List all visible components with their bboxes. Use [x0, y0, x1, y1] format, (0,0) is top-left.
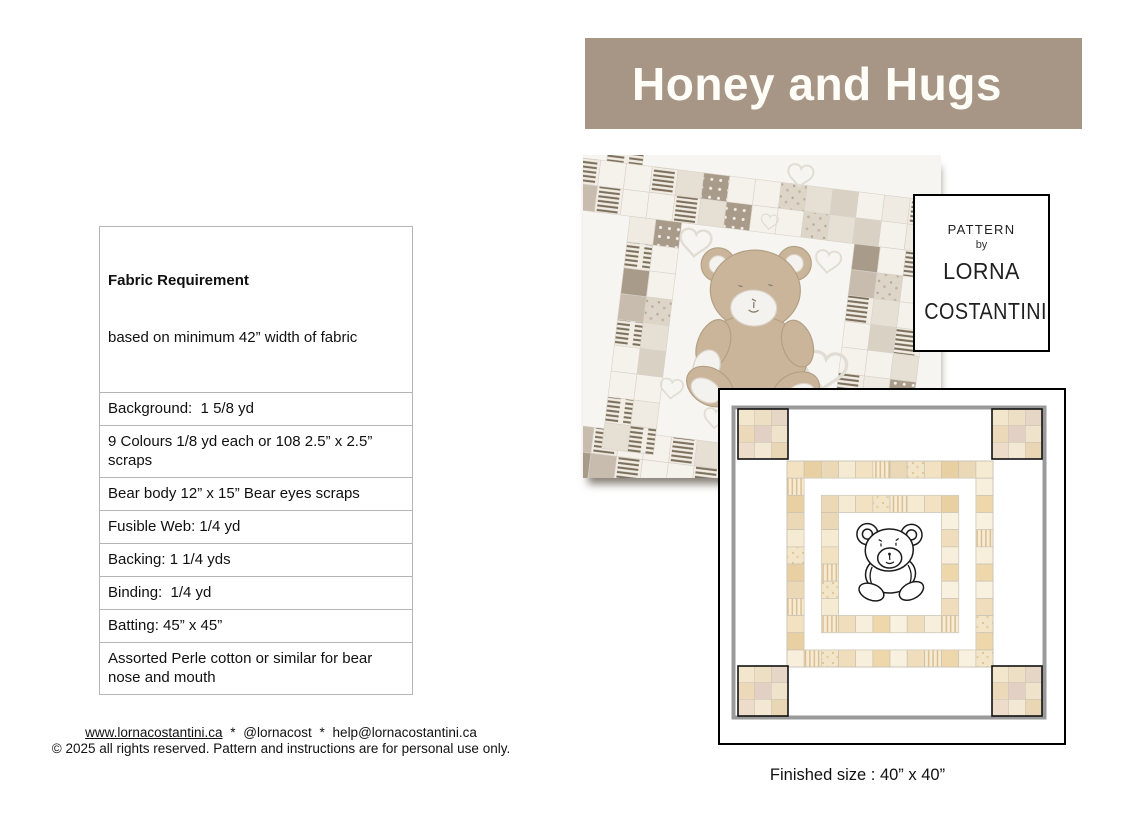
pattern-page: Fabric Requirement based on minimum 42” … — [0, 0, 1138, 823]
designer-first-name: LORNA — [919, 258, 1044, 285]
footer-copyright: © 2025 all rights reserved. Pattern and … — [0, 741, 562, 757]
title-banner: Honey and Hugs — [585, 38, 1082, 129]
social-handle: @lornacost — [243, 725, 311, 740]
footer-separator: * — [230, 725, 235, 740]
page-title: Honey and Hugs — [585, 38, 1082, 131]
website-link[interactable]: www.lornacostantini.ca — [85, 725, 222, 740]
pattern-label: PATTERN — [915, 222, 1048, 237]
table-row: Backing: 1 1/4 yds — [100, 544, 412, 577]
designer-last-name: COSTANTINI — [924, 298, 1038, 325]
table-row: Fabric Requirement based on minimum 42” … — [100, 227, 412, 393]
table-row: Binding: 1/4 yd — [100, 577, 412, 610]
quilt-diagram — [720, 390, 1064, 743]
table-row: Fusible Web: 1/4 yd — [100, 511, 412, 544]
quilt-diagram-box — [718, 388, 1066, 745]
table-row: Assorted Perle cotton or similar for bea… — [100, 643, 412, 695]
table-row: Bear body 12” x 15” Bear eyes scraps — [100, 478, 412, 511]
footer-separator: * — [320, 725, 325, 740]
table-row: Batting: 45” x 45” — [100, 610, 412, 643]
fabric-requirements-table: Fabric Requirement based on minimum 42” … — [99, 226, 413, 695]
table-row: Background: 1 5/8 yd — [100, 393, 412, 426]
pattern-credit-box: PATTERN by LORNA COSTANTINI — [913, 194, 1050, 352]
table-row-heading: Fabric Requirement — [108, 271, 404, 290]
table-row: 9 Colours 1/8 yd each or 108 2.5” x 2.5”… — [100, 426, 412, 478]
finished-size-caption: Finished size : 40” x 40” — [710, 766, 1005, 785]
footer-contact-line: www.lornacostantini.ca * @lornacost * he… — [0, 725, 562, 741]
by-label: by — [915, 239, 1048, 251]
support-email: help@lornacostantini.ca — [333, 725, 477, 740]
footer: www.lornacostantini.ca * @lornacost * he… — [0, 725, 562, 757]
table-row-subtext: based on minimum 42” width of fabric — [108, 328, 404, 347]
diagram-bear-icon — [853, 521, 928, 607]
